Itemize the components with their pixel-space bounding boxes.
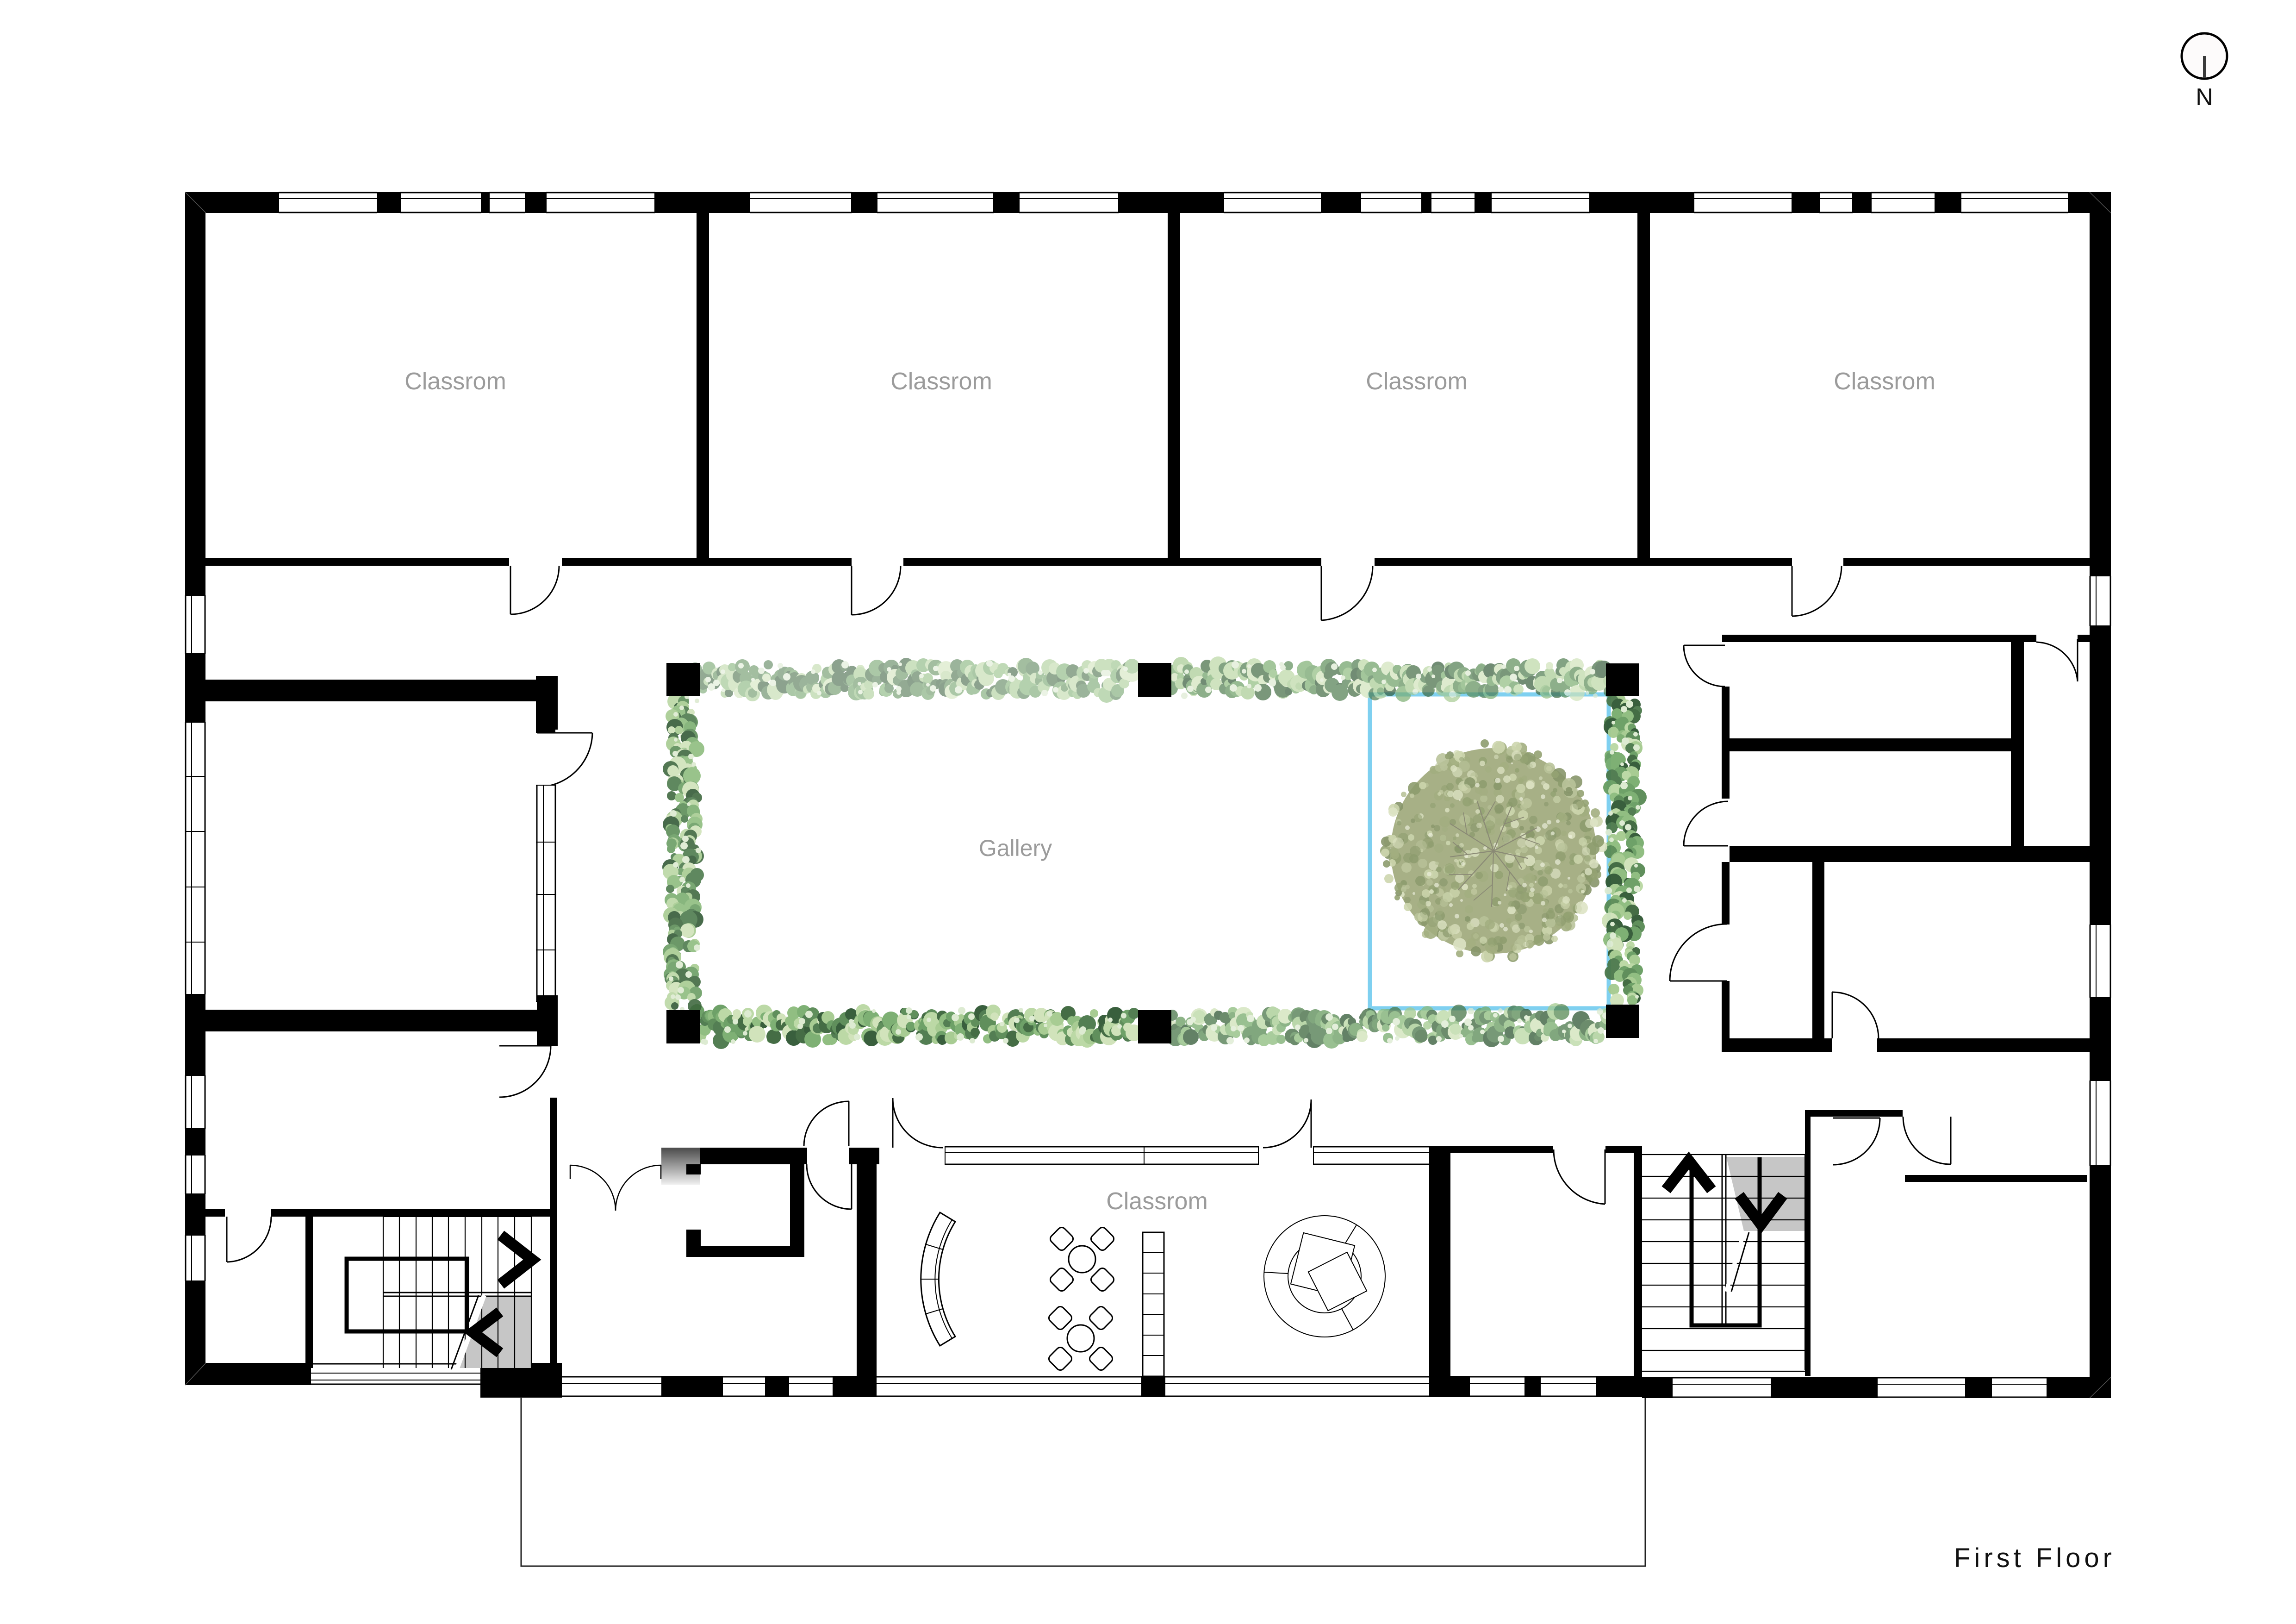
svg-text:Classrom: Classrom <box>1366 368 1468 395</box>
svg-text:N: N <box>2196 84 2213 111</box>
svg-text:Classrom: Classrom <box>1834 368 1935 395</box>
svg-text:Classrom: Classrom <box>1106 1188 1208 1215</box>
svg-text:Classrom: Classrom <box>404 368 506 395</box>
svg-text:First Floor: First Floor <box>1954 1543 2116 1573</box>
svg-text:Classrom: Classrom <box>890 368 992 395</box>
svg-text:Gallery: Gallery <box>979 835 1052 861</box>
